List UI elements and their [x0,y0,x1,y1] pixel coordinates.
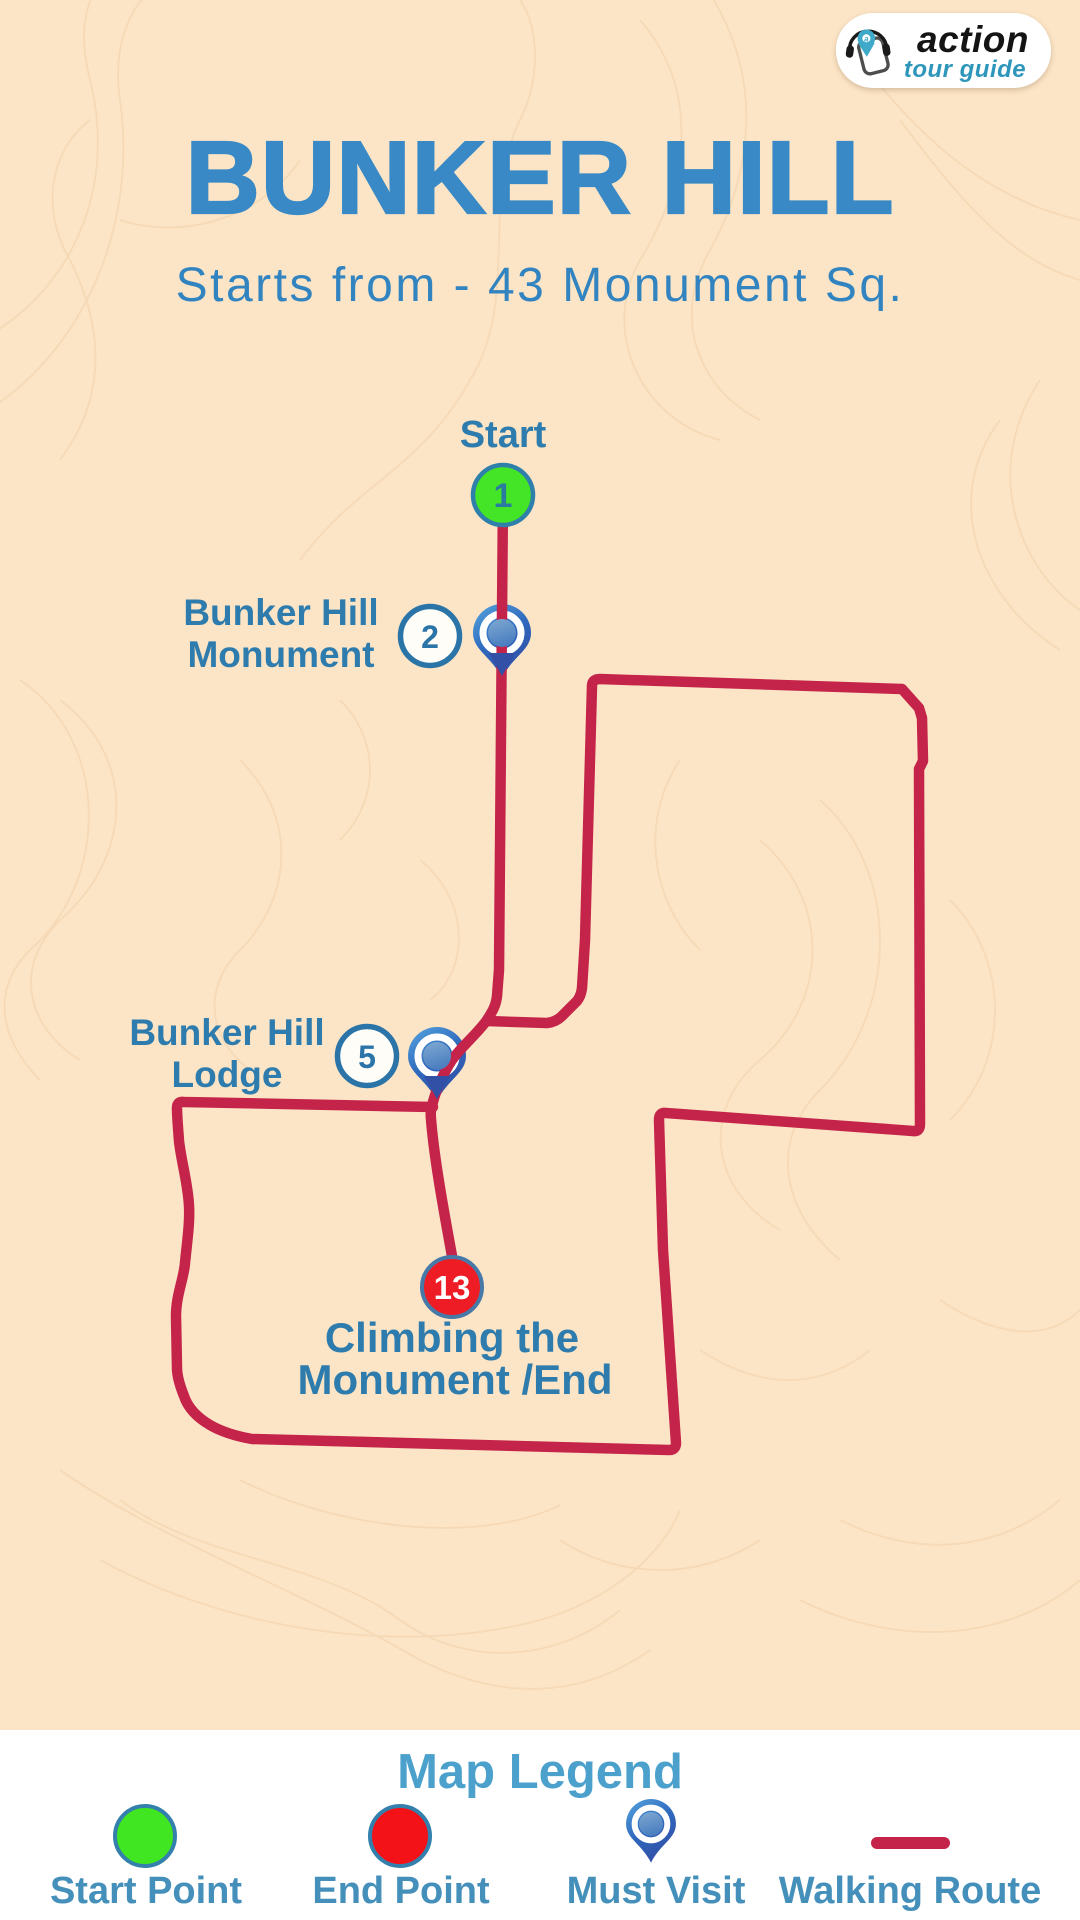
svg-text:13: 13 [434,1269,471,1306]
svg-text:Start Point: Start Point [50,1870,242,1912]
svg-text:Lodge: Lodge [172,1054,283,1095]
svg-text:Climbing the: Climbing the [325,1314,579,1361]
svg-text:Bunker Hill: Bunker Hill [129,1012,324,1053]
svg-text:a: a [864,34,869,43]
svg-text:tour guide: tour guide [904,56,1026,83]
svg-text:1: 1 [494,477,513,515]
svg-text:Monument /End: Monument /End [298,1356,613,1403]
svg-text:Monument: Monument [187,634,374,675]
svg-text:2: 2 [421,619,439,655]
svg-text:Bunker Hill: Bunker Hill [183,592,378,633]
svg-text:BUNKER HILL: BUNKER HILL [185,120,894,235]
svg-text:action: action [917,19,1029,60]
svg-text:Starts from - 43 Monument Sq.: Starts from - 43 Monument Sq. [176,259,905,312]
svg-text:End Point: End Point [312,1870,490,1912]
svg-text:Start: Start [460,414,547,456]
svg-text:5: 5 [358,1039,376,1075]
svg-text:Walking Route: Walking Route [779,1870,1041,1912]
svg-text:Must Visit: Must Visit [567,1870,746,1912]
svg-text:Map Legend: Map Legend [397,1745,683,1799]
